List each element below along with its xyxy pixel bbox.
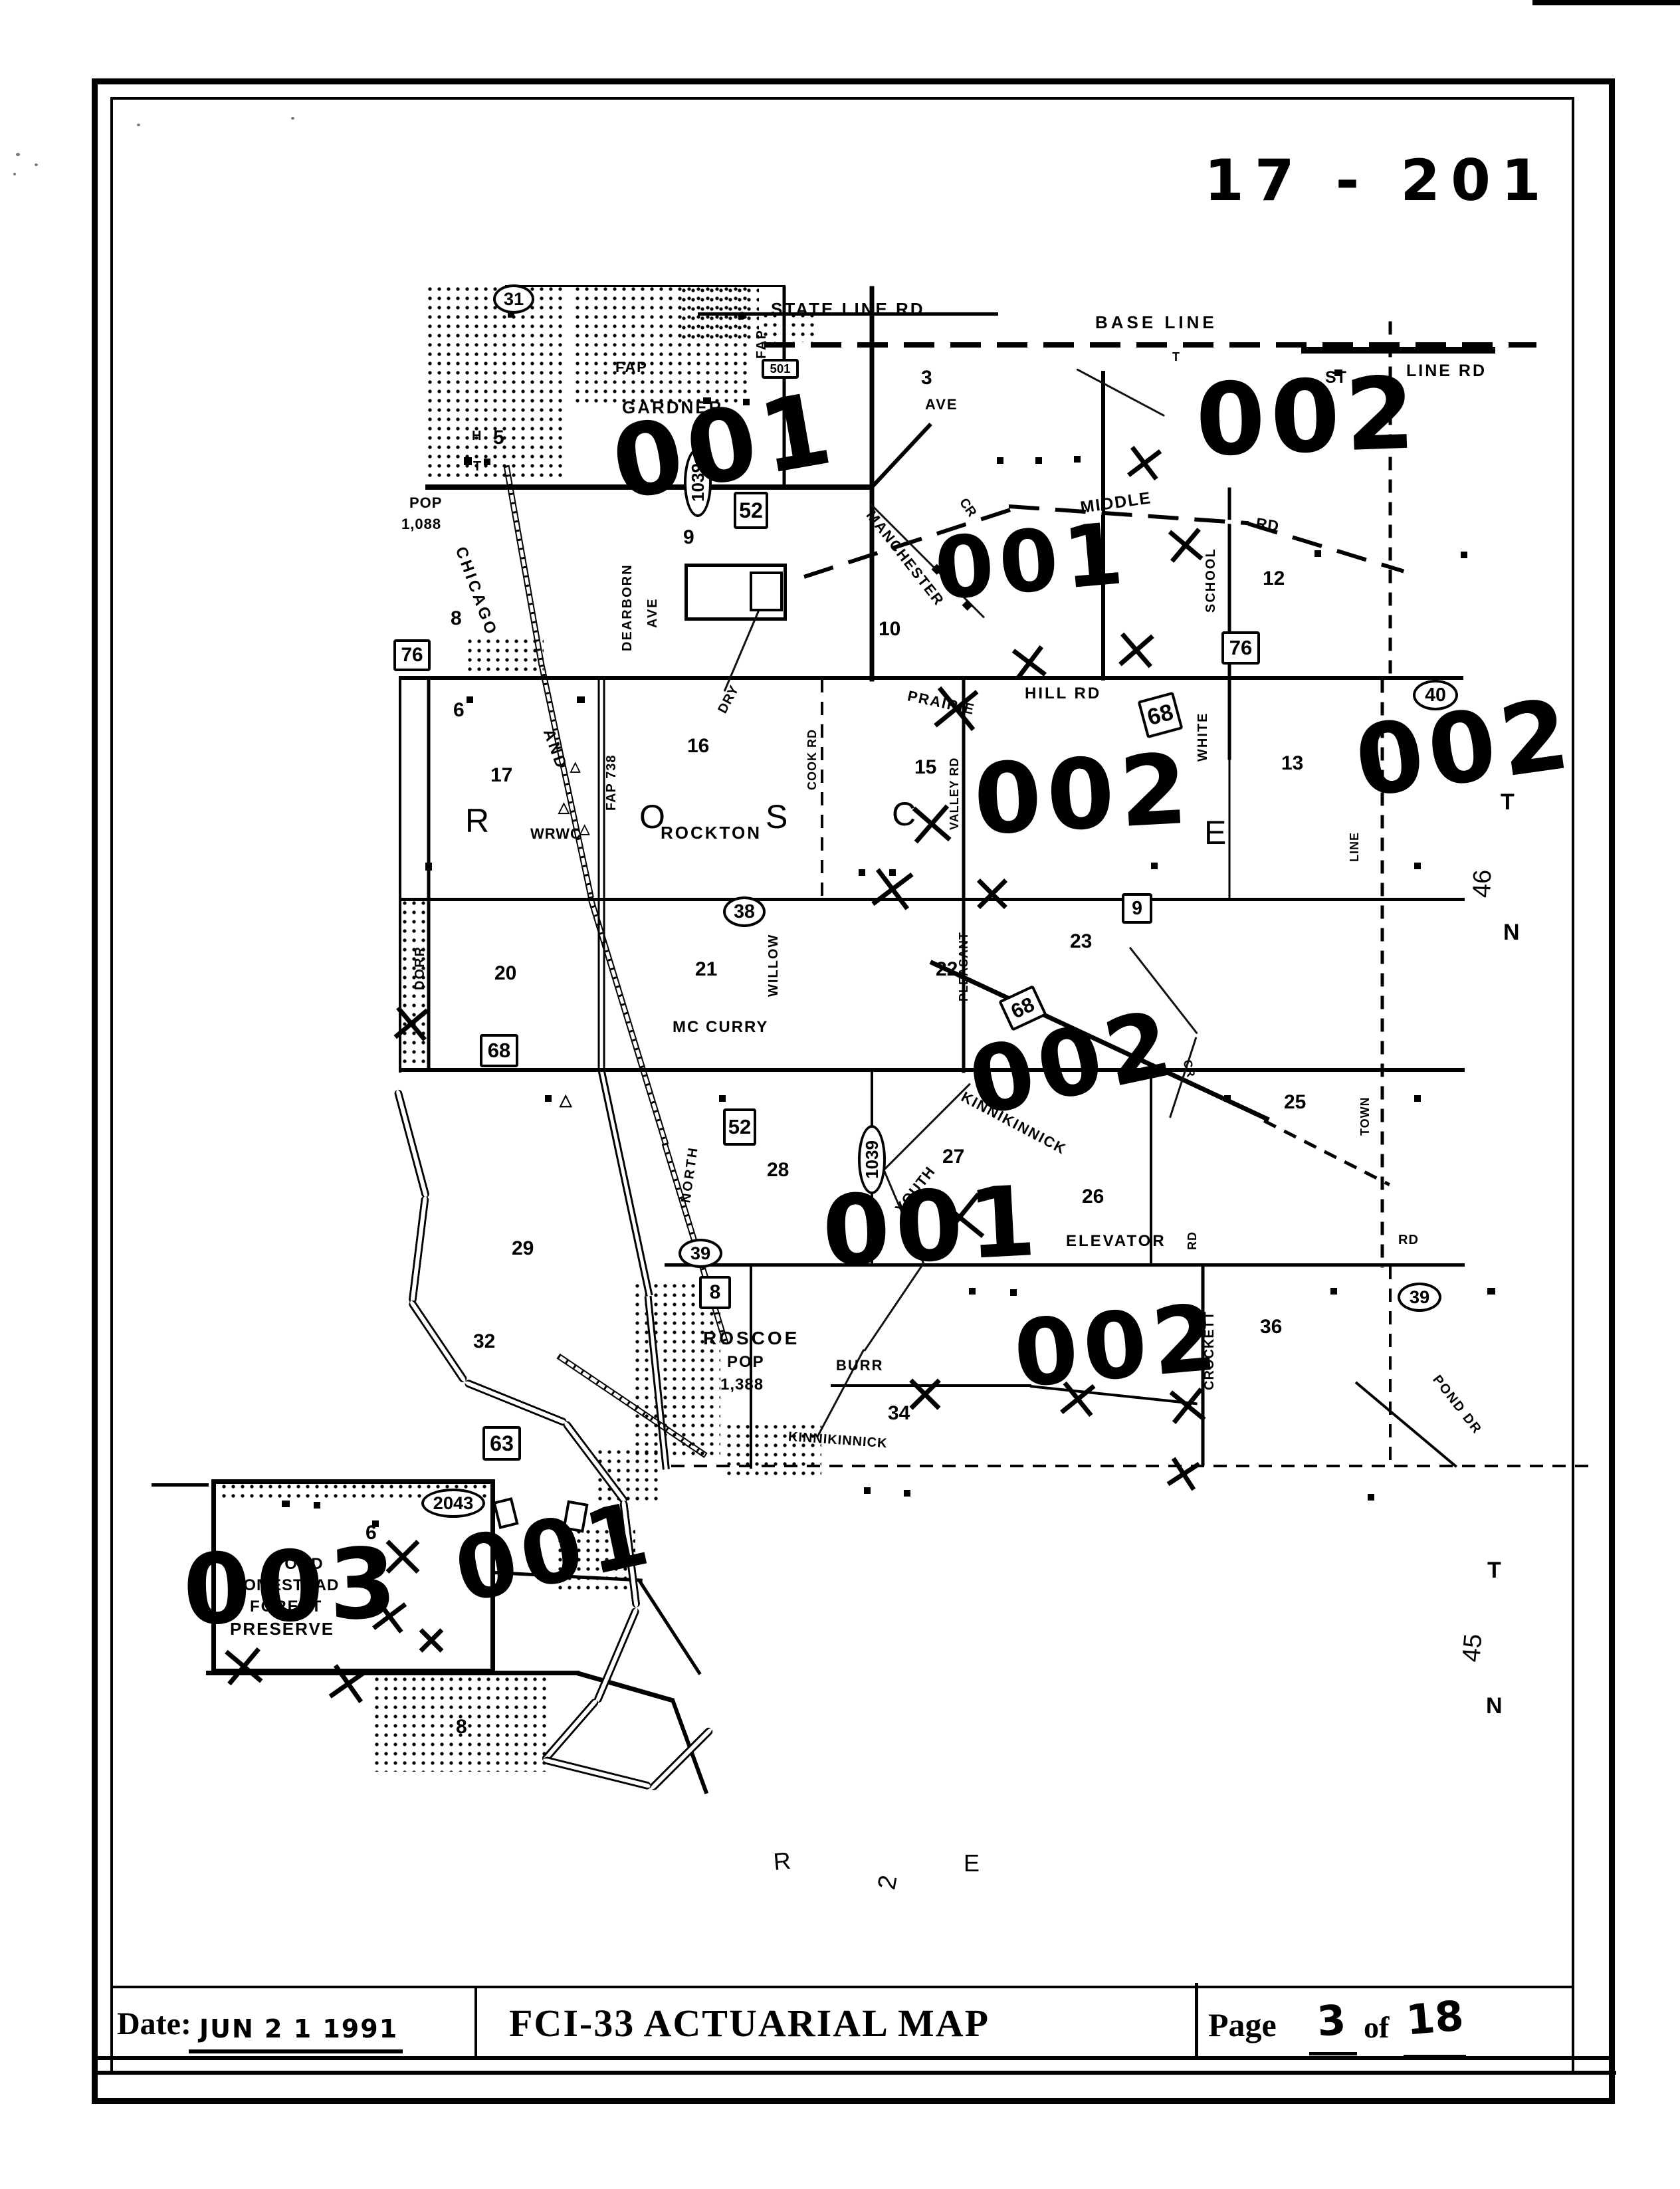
creek	[1076, 368, 1165, 417]
map-label: MC CURRY	[673, 1019, 768, 1035]
x-mark	[1129, 444, 1160, 483]
scan-speck	[137, 124, 140, 126]
map-label: CR	[1181, 1059, 1197, 1079]
rule-line	[1195, 1983, 1198, 2056]
map-label: 46	[1469, 869, 1495, 898]
map-label: CR	[957, 496, 979, 519]
route-shield: 38	[723, 896, 766, 927]
x-mark	[330, 1662, 366, 1707]
map-label: PLEASANT	[958, 932, 970, 1001]
rule-line	[189, 2049, 403, 2053]
zone-mark: 002	[1194, 364, 1421, 471]
section-number: 8	[456, 1716, 467, 1738]
map-label: WRWC	[530, 827, 581, 841]
route-shield: 76	[1221, 631, 1260, 665]
map-label: R	[772, 1849, 791, 1874]
road	[505, 285, 786, 287]
rule-line	[1309, 2052, 1357, 2055]
map-label: HILL RD	[1025, 686, 1101, 702]
road	[1229, 760, 1231, 900]
building	[859, 869, 865, 876]
route-shield: 76	[393, 639, 431, 671]
x-mark	[397, 1003, 427, 1043]
map-label: △	[570, 760, 580, 774]
map-label: SCHOOL	[1204, 548, 1217, 613]
route-shield: 52	[723, 1108, 756, 1146]
building	[1487, 1288, 1495, 1295]
road	[871, 423, 932, 488]
map-label: DEARBORN	[621, 564, 634, 651]
road	[671, 1465, 1596, 1467]
map-label: ROSCOE	[703, 1329, 799, 1348]
scan-speck	[13, 173, 16, 175]
map-label: POND DR	[1430, 1373, 1484, 1437]
map-label: NORTH	[679, 1145, 700, 1203]
building	[719, 1095, 726, 1102]
road	[1389, 1266, 1392, 1467]
map-title: FCI-33 ACTUARIAL MAP	[509, 2004, 990, 2043]
map-label: E	[1204, 816, 1226, 849]
road	[152, 1483, 209, 1487]
map-label: FAP 738	[605, 755, 618, 811]
page-total: 18	[1404, 1995, 1465, 2041]
page-number: 3	[1316, 2000, 1347, 2043]
route-shield: 68	[1137, 692, 1183, 739]
river	[543, 1756, 652, 1790]
zone-mark: 001	[820, 1172, 1043, 1281]
map-label: TOWN	[1359, 1096, 1371, 1136]
date-stamp: JUN 2 1 1991	[199, 2016, 398, 2041]
x-mark	[936, 682, 976, 734]
zone-mark: 002	[1011, 1292, 1225, 1402]
map-label: △	[579, 823, 589, 836]
river	[393, 1089, 430, 1198]
map-label: RD	[1255, 516, 1280, 534]
route-shield: 9	[1122, 893, 1152, 924]
map-label: 1,088	[401, 517, 441, 532]
zone-mark: 003	[181, 1534, 403, 1639]
page-label: Page	[1208, 2008, 1277, 2041]
map-label: WHITE	[1196, 712, 1209, 762]
map-label: BURR	[836, 1358, 884, 1373]
x-mark	[915, 801, 948, 846]
building	[1151, 863, 1158, 869]
date-label: Date:	[117, 2008, 191, 2040]
map-label: DRY	[716, 683, 742, 716]
building	[997, 457, 1003, 464]
road	[399, 676, 1463, 680]
section-number: 32	[473, 1330, 495, 1353]
map-label: LINE	[1348, 832, 1360, 862]
building	[1330, 1288, 1337, 1295]
map-label: C	[892, 797, 916, 831]
railroad	[539, 664, 594, 898]
road	[821, 679, 823, 900]
route-shield: 39	[679, 1239, 722, 1268]
road	[1301, 347, 1495, 354]
x-mark	[422, 1627, 441, 1653]
map-label: RD	[1398, 1233, 1419, 1247]
section-number: 16	[687, 735, 709, 758]
section-number: 21	[695, 958, 717, 981]
rule-line	[1404, 2055, 1466, 2058]
river	[540, 1697, 599, 1764]
section-number: 36	[1260, 1316, 1282, 1338]
zone-mark: 002	[1350, 685, 1580, 811]
x-mark	[874, 865, 911, 913]
river	[464, 1378, 568, 1427]
building	[467, 696, 473, 703]
section-number: 13	[1281, 752, 1303, 775]
box-outline	[750, 572, 783, 611]
road	[1228, 487, 1231, 760]
building	[1010, 1289, 1017, 1296]
section-number: 3	[921, 367, 932, 389]
railroad	[504, 465, 545, 666]
map-label: WILLOW	[767, 934, 780, 997]
building	[314, 1502, 320, 1509]
map-label: △	[560, 1093, 572, 1108]
map-area: STATE LINE RDBASE LINELINE RDSTMIDDLERDM…	[0, 0, 1680, 2189]
zone-mark: 001	[931, 512, 1131, 613]
map-label: AND	[540, 727, 570, 772]
section-number: 29	[512, 1237, 534, 1260]
section-number: 23	[1070, 930, 1092, 953]
map-label: R	[465, 804, 489, 837]
section-number: 28	[767, 1159, 789, 1182]
river	[408, 1196, 429, 1303]
building	[969, 1288, 976, 1295]
map-label: ●	[736, 306, 748, 324]
scan-speck	[16, 153, 20, 156]
x-mark	[1121, 630, 1152, 671]
section-number: 27	[942, 1146, 964, 1168]
map-label: T	[1487, 1559, 1501, 1582]
road	[598, 1069, 653, 1297]
building	[545, 1095, 552, 1102]
map-label: COOK RD	[806, 729, 818, 790]
urban-area	[465, 637, 544, 677]
section-number: 12	[1263, 568, 1285, 590]
rule-line	[93, 2071, 1616, 2075]
section-number: 5	[493, 427, 504, 449]
map-label: DORR	[413, 946, 427, 990]
route-shield: 68	[480, 1034, 518, 1067]
building	[904, 1490, 910, 1497]
map-label: POP	[409, 496, 442, 510]
route-shield: 63	[482, 1426, 521, 1461]
building	[1414, 863, 1421, 869]
map-label: T	[1172, 351, 1180, 363]
map-label: AVE	[925, 397, 958, 412]
map-label: ROCKTON	[661, 824, 762, 841]
x-mark	[980, 877, 1004, 911]
map-label: STATE LINE RD	[771, 300, 925, 318]
route-shield: 2043	[421, 1489, 485, 1518]
section-number: 6	[453, 699, 465, 722]
building	[484, 459, 490, 465]
map-label: 1,388	[720, 1377, 764, 1393]
map-label: VALLEY RD	[948, 758, 960, 830]
scan-speck	[35, 163, 38, 166]
building	[1414, 1095, 1421, 1102]
road	[598, 678, 605, 1071]
footer-bar: Date: JUN 2 1 1991 FCI-33 ACTUARIAL MAP …	[110, 1986, 1574, 2073]
map-label: E	[964, 1851, 980, 1875]
section-number: 15	[914, 756, 936, 779]
building	[1461, 552, 1467, 558]
scan-speck	[291, 117, 294, 120]
rule-line	[1532, 0, 1680, 5]
rule-line	[110, 1986, 1574, 1988]
road	[962, 679, 966, 1073]
of-label: of	[1364, 2012, 1389, 2043]
road	[665, 1263, 1465, 1267]
building	[464, 457, 472, 465]
route-shield: 8	[699, 1276, 731, 1309]
rule-line	[93, 2056, 1615, 2060]
map-label: T	[473, 460, 481, 473]
building	[1035, 457, 1042, 464]
x-mark	[1171, 525, 1201, 564]
map-label: △	[558, 800, 570, 815]
section-number: 9	[683, 526, 694, 549]
section-number: 25	[1284, 1091, 1306, 1114]
x-mark	[1168, 1455, 1199, 1493]
building	[577, 696, 585, 703]
x-mark	[912, 1376, 938, 1412]
section-number: 8	[451, 607, 462, 630]
rule-line	[474, 1987, 477, 2056]
building	[1314, 550, 1321, 557]
route-shield: 39	[1398, 1283, 1441, 1312]
building	[1368, 1494, 1374, 1501]
map-label: RD	[1186, 1231, 1198, 1250]
map-label: H	[472, 429, 481, 443]
river	[407, 1299, 469, 1384]
map-label: S	[766, 800, 787, 833]
map-label: N	[1503, 921, 1520, 944]
route-shield: 31	[493, 284, 534, 314]
map-label: AVE	[646, 597, 659, 628]
section-number: 10	[879, 618, 900, 641]
map-label: 2	[874, 1873, 901, 1891]
section-number: 20	[494, 962, 516, 985]
x-mark	[1014, 643, 1045, 682]
zone-mark: 002	[972, 740, 1195, 849]
map-label: 45	[1459, 1633, 1487, 1663]
section-number: 26	[1082, 1186, 1104, 1208]
road	[638, 1580, 702, 1675]
road	[399, 898, 1465, 901]
map-label: ELEVATOR	[1066, 1233, 1166, 1249]
building	[1224, 1095, 1231, 1102]
building	[282, 1501, 290, 1507]
map-label: FAP	[755, 329, 768, 359]
road	[399, 1068, 1465, 1072]
road	[576, 1671, 675, 1703]
building	[425, 863, 432, 871]
section-number: 34	[888, 1402, 910, 1425]
building	[1074, 456, 1081, 463]
section-number: 22	[936, 958, 958, 981]
x-mark	[227, 1645, 261, 1689]
map-label: FAP	[615, 360, 648, 375]
map-label: POP	[727, 1354, 765, 1370]
section-number: 17	[490, 764, 512, 787]
map-label: BASE LINE	[1095, 314, 1217, 331]
building	[864, 1487, 871, 1494]
map-label: N	[1486, 1695, 1503, 1717]
